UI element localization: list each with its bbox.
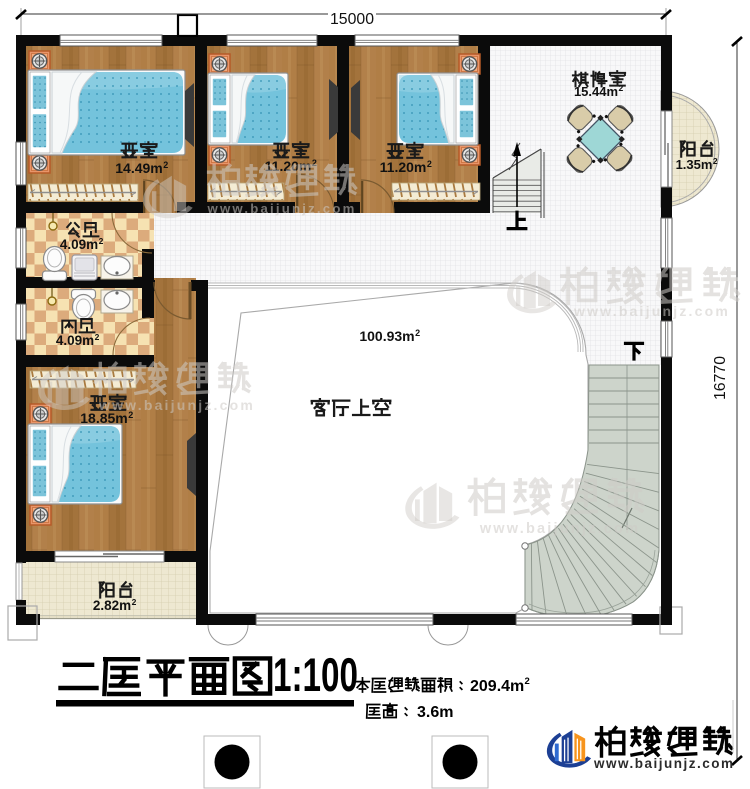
svg-text:2: 2 xyxy=(427,159,432,169)
svg-text:2: 2 xyxy=(619,83,624,93)
svg-text:www.baijunjz.com: www.baijunjz.com xyxy=(479,521,640,537)
svg-text:4.09m: 4.09m xyxy=(60,237,98,252)
svg-text:1:100: 1:100 xyxy=(273,648,358,701)
svg-text:2.82m: 2.82m xyxy=(93,598,131,613)
svg-text:www.baijunjz.com: www.baijunjz.com xyxy=(206,201,356,216)
svg-text:100.93m: 100.93m xyxy=(359,328,414,344)
svg-text:2: 2 xyxy=(132,597,137,607)
svg-text:2: 2 xyxy=(525,676,530,687)
svg-text:2: 2 xyxy=(95,332,100,342)
svg-text:3.6m: 3.6m xyxy=(417,704,453,721)
svg-text:www.baijunjz.com: www.baijunjz.com xyxy=(593,756,735,771)
svg-text:www.baijunjz.com: www.baijunjz.com xyxy=(573,303,730,319)
svg-text:209.4m: 209.4m xyxy=(470,678,524,695)
svg-text:2: 2 xyxy=(415,328,420,338)
svg-text:16770: 16770 xyxy=(712,356,729,400)
svg-text:2: 2 xyxy=(163,160,168,170)
svg-text:15.44m: 15.44m xyxy=(574,84,618,99)
svg-text:2: 2 xyxy=(99,236,104,246)
svg-text:11.20m: 11.20m xyxy=(380,159,427,175)
svg-text:1.35m: 1.35m xyxy=(676,157,713,172)
svg-text:www.baijunjz.com: www.baijunjz.com xyxy=(98,397,255,413)
svg-text:15000: 15000 xyxy=(330,11,374,28)
svg-text:4.09m: 4.09m xyxy=(56,333,94,348)
svg-text:2: 2 xyxy=(713,156,718,166)
svg-text:14.49m: 14.49m xyxy=(115,160,162,176)
